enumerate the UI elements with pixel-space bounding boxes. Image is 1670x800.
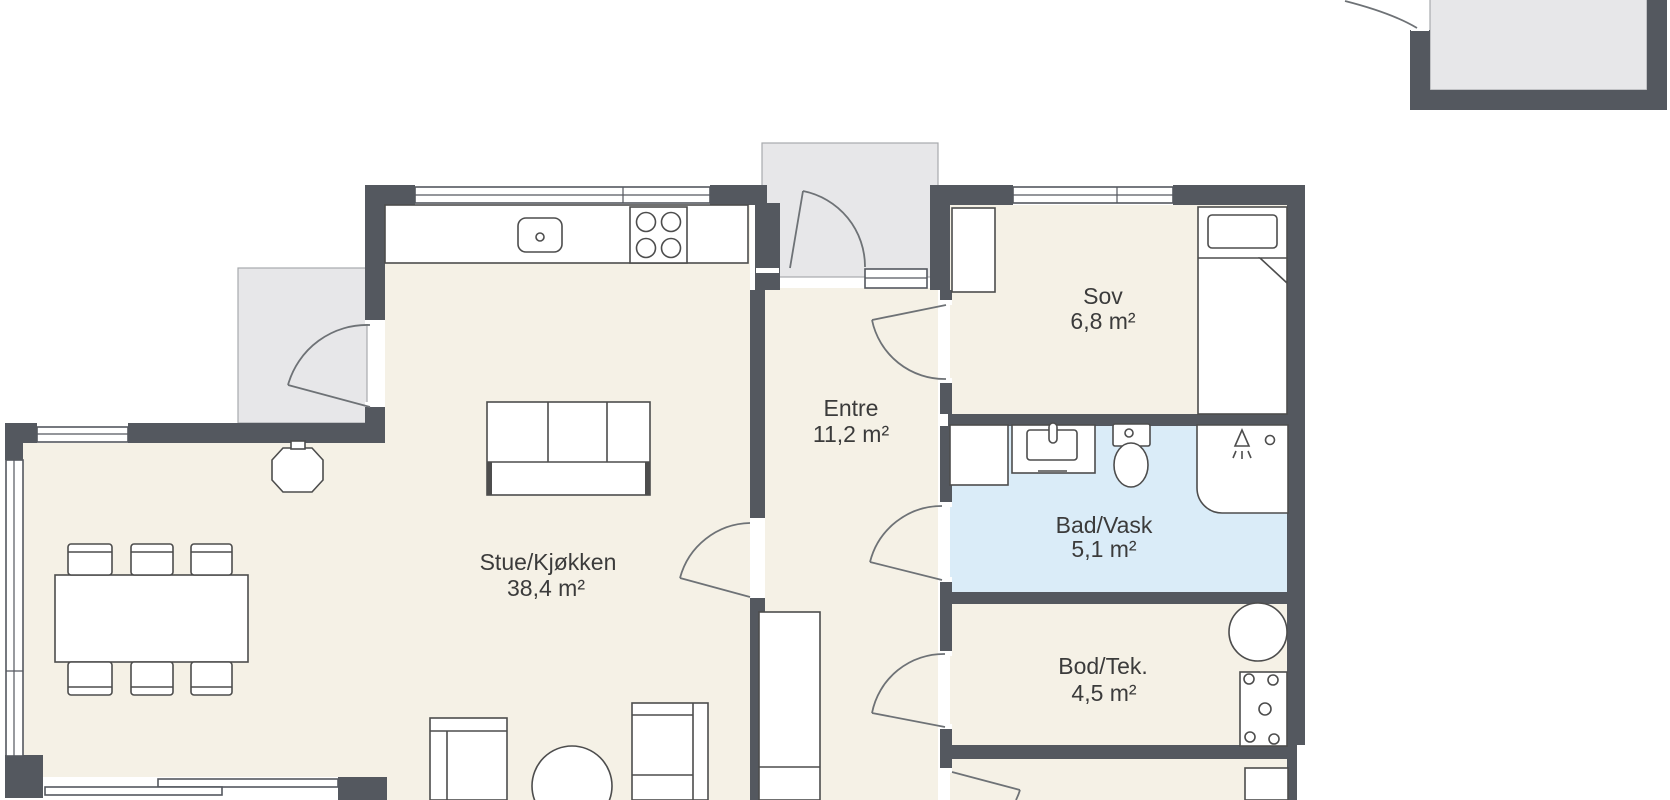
wall-segment (952, 745, 1297, 759)
fireplace-stove (272, 448, 323, 492)
wall-segment (5, 755, 43, 798)
kitchen-sink (518, 218, 562, 252)
door-sill (756, 268, 779, 273)
room-area-sov: 6,8 m² (1070, 308, 1136, 334)
entre-wardrobe (759, 612, 820, 800)
wall-segment (750, 290, 765, 523)
bedroom-wardrobe (952, 208, 995, 292)
wall-segment (948, 592, 1287, 604)
terrace-left (238, 268, 367, 423)
kitchen-counter (385, 205, 748, 263)
wall-segment (1173, 185, 1305, 205)
fireplace-flue (291, 441, 305, 449)
wall-segment (940, 380, 952, 414)
room-area-stue: 38,4 m² (507, 575, 585, 601)
kitchen-fixtures (385, 205, 748, 263)
wall-segment (755, 203, 780, 290)
bathroom-cabinet (950, 425, 1008, 485)
entre-furniture (759, 612, 820, 800)
room-area-bod: 4,5 m² (1071, 680, 1137, 706)
door-sill (940, 300, 952, 305)
room-label-bad: Bad/Vask (1056, 512, 1153, 538)
dining-chair (191, 544, 232, 575)
toilet-bowl (1114, 443, 1148, 487)
bed-pillow (1208, 215, 1277, 248)
wall-segment (1647, 0, 1667, 110)
wall-segment (338, 777, 387, 800)
door-sill (750, 518, 765, 523)
sliding-door-panel (45, 787, 222, 795)
wall-segment (1287, 205, 1305, 745)
wall-segment (710, 185, 767, 205)
wall-segment (940, 727, 952, 772)
floor-plan: Stue/Kjøkken 38,4 m² Entre 11,2 m² Sov 6… (0, 0, 1670, 800)
wall-segment (930, 185, 1013, 205)
wall-segment (128, 423, 385, 443)
wall-segment (940, 604, 952, 655)
faucet-icon (1049, 423, 1057, 443)
room-label-sov: Sov (1083, 283, 1123, 309)
dining-table (55, 575, 248, 662)
terrace-top-right (1430, 0, 1647, 90)
sofa-armrest (645, 462, 650, 495)
dining-chair (68, 544, 112, 575)
dining-chair (191, 662, 232, 695)
wall-segment (5, 443, 23, 460)
floor-room-south (950, 758, 1287, 800)
sliding-door-panel (158, 779, 338, 787)
room-label-stue: Stue/Kjøkken (480, 549, 617, 575)
room-label-entre: Entre (824, 395, 879, 421)
dining-chair (131, 662, 173, 695)
wall-segment (5, 423, 37, 443)
door-sill (750, 593, 765, 598)
water-heater (1229, 603, 1287, 661)
wall-segment (1410, 90, 1667, 110)
entry-porch (762, 143, 938, 277)
sofa (487, 402, 650, 495)
dining-chair (131, 544, 173, 575)
room-area-bad: 5,1 m² (1071, 536, 1137, 562)
wall-segment (365, 205, 385, 323)
storage-cabinet (1245, 768, 1288, 800)
door-sill (940, 768, 952, 773)
wall-segment (930, 203, 950, 290)
floor-plan-svg: Stue/Kjøkken 38,4 m² Entre 11,2 m² Sov 6… (0, 0, 1670, 800)
dining-chair (68, 662, 112, 695)
room-label-bod: Bod/Tek. (1058, 653, 1148, 679)
wall-segment (365, 405, 385, 423)
lounge-sofa (632, 703, 708, 800)
room-area-entre: 11,2 m² (813, 421, 890, 447)
sofa-armrest (487, 462, 492, 495)
